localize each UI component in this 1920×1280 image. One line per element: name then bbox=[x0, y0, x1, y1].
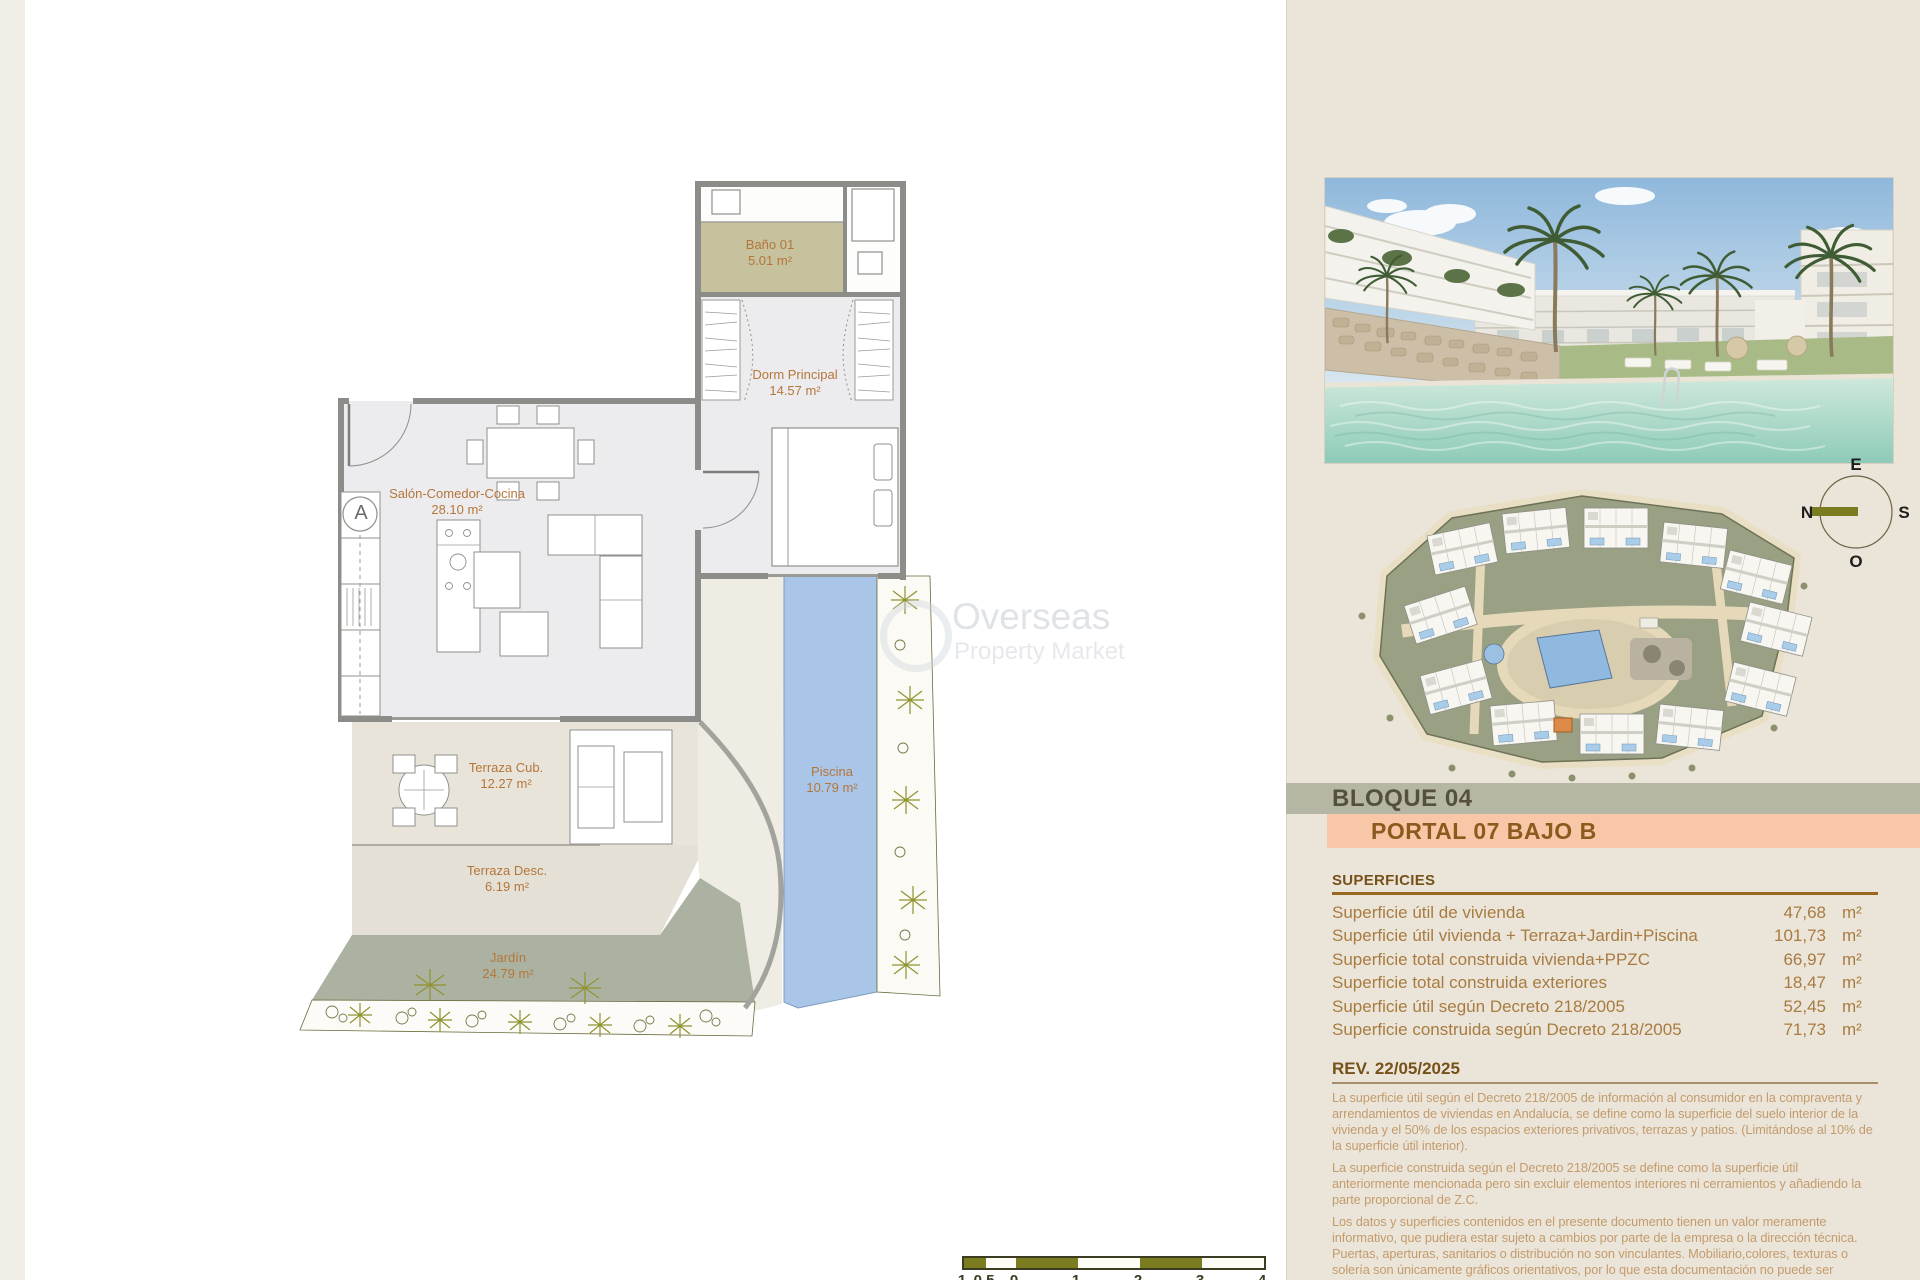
block-header-band: BLOQUE 04 bbox=[1286, 783, 1920, 814]
table-row: Superficie total construida exteriores 1… bbox=[1332, 971, 1878, 994]
table-row: Superficie útil de vivienda 47,68 m² bbox=[1332, 901, 1878, 924]
scale-number: 1 bbox=[1072, 1272, 1080, 1280]
scale-bar bbox=[962, 1256, 1266, 1270]
scale-number: 2 bbox=[1134, 1272, 1142, 1280]
superficies-section: SUPERFICIES Superficie útil de vivienda … bbox=[1332, 872, 1878, 1041]
room-label-terraza-desc: Terraza Desc. 6.19 m² bbox=[427, 863, 587, 895]
room-label-salon: Salón-Comedor-Cocina 28.10 m² bbox=[377, 486, 537, 518]
superficies-rule bbox=[1332, 892, 1878, 895]
site-masterplan bbox=[1332, 466, 1847, 788]
room-label-dormitorio: Dorm Principal 14.57 m² bbox=[715, 367, 875, 399]
compass-s: S bbox=[1898, 503, 1909, 522]
room-label-piscina: Piscina 10.79 m² bbox=[752, 764, 912, 796]
entrance-marker-a: A bbox=[348, 502, 374, 525]
pool-render-illustration bbox=[1325, 178, 1893, 463]
brochure-page: Baño 01 5.01 m² Dorm Principal 14.57 m² … bbox=[0, 0, 1920, 1280]
pool-render-photo bbox=[1325, 178, 1893, 463]
table-row: Superficie útil vivienda + Terraza+Jardi… bbox=[1332, 924, 1878, 947]
highlighted-unit bbox=[1554, 718, 1572, 732]
scale-number: 0 bbox=[1010, 1272, 1018, 1280]
legal-paragraph: Los datos y superficies contenidos en el… bbox=[1332, 1214, 1878, 1280]
scale-number: 3 bbox=[1196, 1272, 1204, 1280]
scale-number: 0.5 bbox=[974, 1272, 995, 1280]
legal-paragraph: La superficie construida según el Decret… bbox=[1332, 1160, 1878, 1208]
table-row: Superficie útil según Decreto 218/2005 5… bbox=[1332, 995, 1878, 1018]
superficies-table: Superficie útil de vivienda 47,68 m² Sup… bbox=[1332, 901, 1878, 1041]
table-row: Superficie total construida vivienda+PPZ… bbox=[1332, 948, 1878, 971]
superficies-title: SUPERFICIES bbox=[1332, 872, 1878, 889]
revision-rule bbox=[1332, 1082, 1878, 1084]
revision-section: REV. 22/05/2025 La superficie útil según… bbox=[1332, 1059, 1878, 1280]
scale-number: 4 bbox=[1258, 1272, 1266, 1280]
table-row: Superficie construida según Decreto 218/… bbox=[1332, 1018, 1878, 1041]
portal-header-band: PORTAL 07 BAJO B bbox=[1327, 814, 1920, 848]
room-label-jardin: Jardín 24.79 m² bbox=[428, 950, 588, 982]
legal-paragraph: La superficie útil según el Decreto 218/… bbox=[1332, 1090, 1878, 1154]
scale-number: 1 bbox=[958, 1272, 966, 1280]
room-label-terraza-cub: Terraza Cub. 12.27 m² bbox=[426, 760, 586, 792]
compass-e: E bbox=[1850, 455, 1861, 474]
compass-o: O bbox=[1849, 552, 1862, 571]
room-label-bano: Baño 01 5.01 m² bbox=[690, 237, 850, 269]
revision-title: REV. 22/05/2025 bbox=[1332, 1059, 1878, 1079]
